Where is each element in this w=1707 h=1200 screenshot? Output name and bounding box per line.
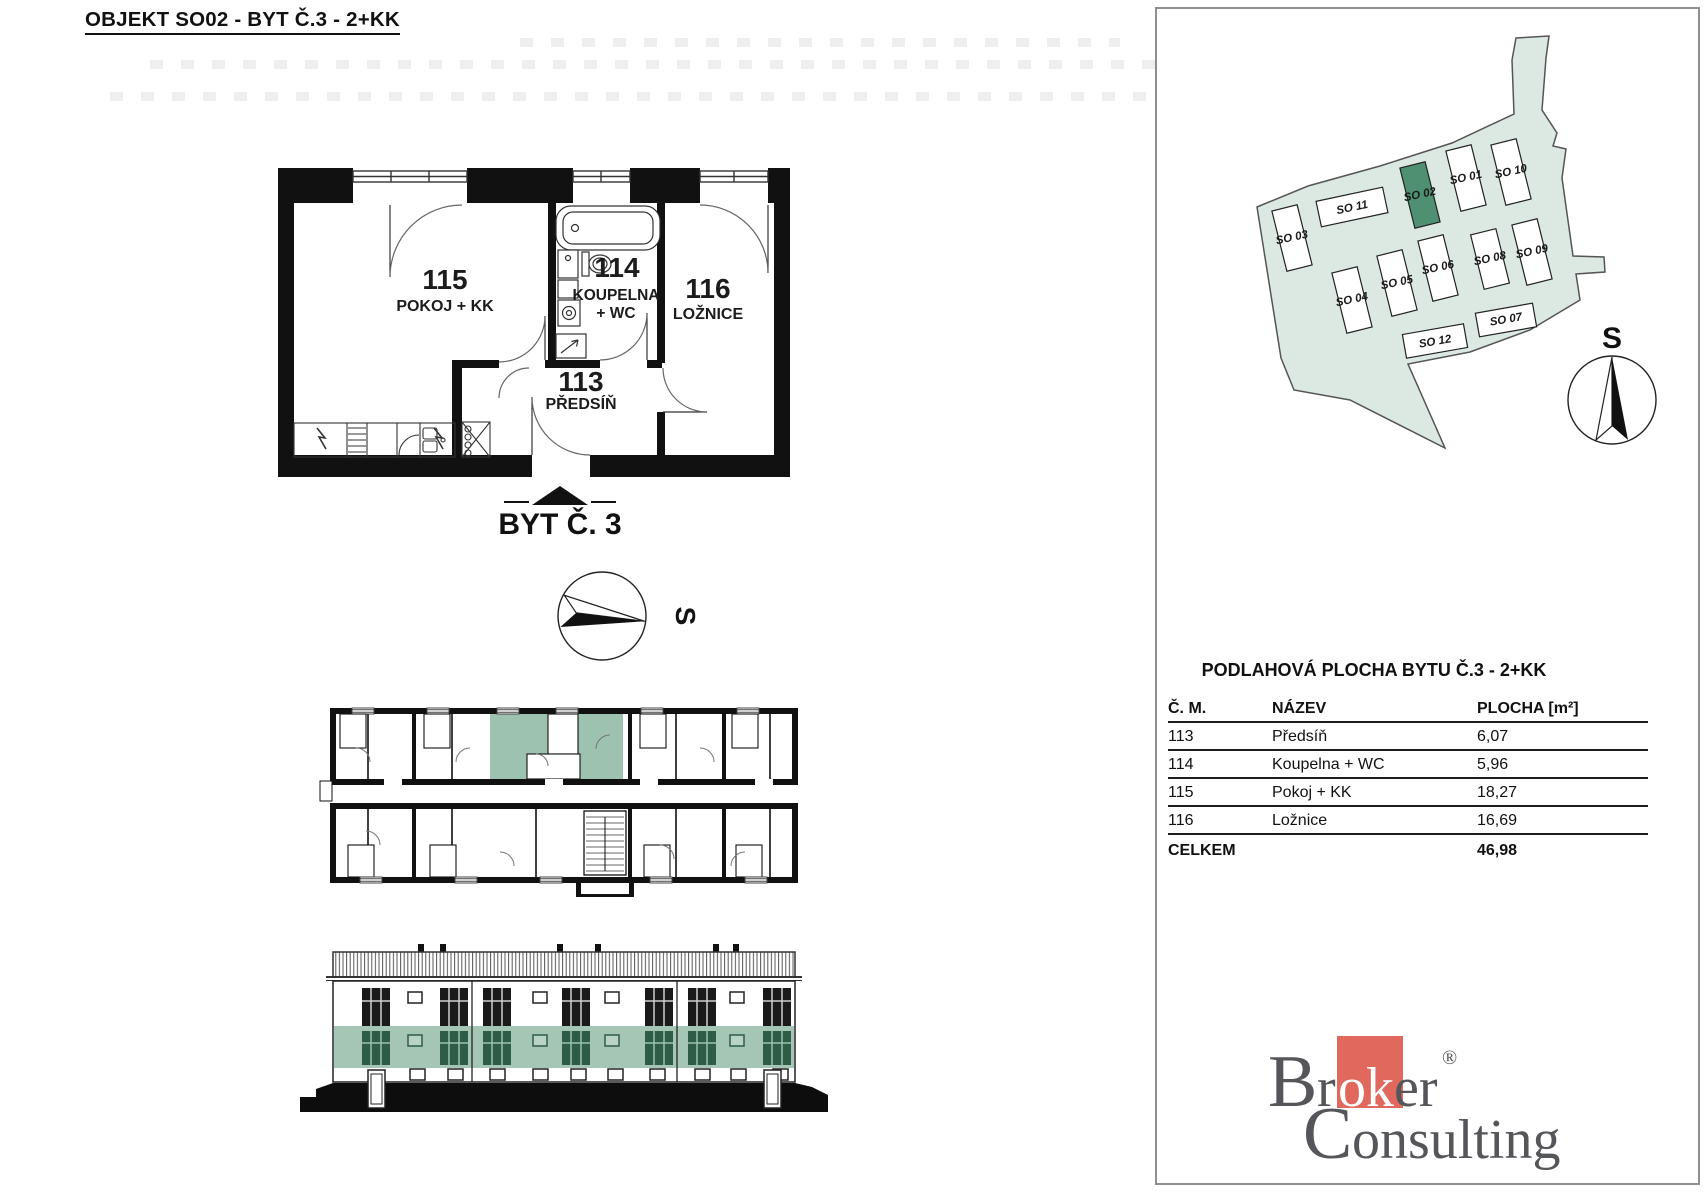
- room-name: Pokoj + KK: [1272, 783, 1477, 802]
- logo-letter: C: [1303, 1093, 1352, 1175]
- room-115-number: 115: [422, 264, 467, 295]
- room-115-name: POKOJ + KK: [396, 298, 494, 315]
- table-header-row: Č. M. NÁZEV PLOCHA [m²]: [1168, 695, 1648, 723]
- floor-plan-compass: S: [558, 572, 701, 660]
- table-row: 113 Předsíň 6,07: [1168, 723, 1648, 751]
- room-number: 114: [1168, 755, 1272, 774]
- architectural-drawings: 115 POKOJ + KK 114 KOUPELNA + WC 116 LOŽ…: [260, 140, 830, 1130]
- table-row: 116 Ložnice 16,69: [1168, 807, 1648, 835]
- room-113-name: PŘEDSÍŇ: [545, 394, 616, 413]
- site-compass: S: [1568, 322, 1656, 444]
- room-number: 115: [1168, 783, 1272, 802]
- total-label: CELKEM: [1168, 841, 1477, 860]
- staircase: [576, 811, 634, 897]
- room-114-number: 114: [594, 252, 640, 283]
- room-number: 116: [1168, 811, 1272, 830]
- chimneys: [418, 944, 739, 952]
- scan-artifact: [520, 38, 1120, 47]
- room-area: 18,27: [1477, 783, 1648, 802]
- room-name: Ložnice: [1272, 811, 1477, 830]
- room-116-name: LOŽNICE: [673, 304, 744, 323]
- table-row: 114 Koupelna + WC 5,96: [1168, 751, 1648, 779]
- room-name: Koupelna + WC: [1272, 755, 1477, 774]
- north-label: S: [1602, 322, 1622, 355]
- entrance-arrow-icon: [532, 486, 588, 505]
- floor-area-table: PODLAHOVÁ PLOCHA BYTU Č.3 - 2+KK Č. M. N…: [1168, 660, 1648, 863]
- site-plan: SO 11 SO 02 SO 01 SO 10 SO 03 SO 06 SO 0…: [1157, 9, 1698, 1183]
- north-label: S: [670, 607, 701, 626]
- building-elevation: [300, 944, 828, 1112]
- broker-consulting-logo: B r ok er ® C onsulting: [1255, 1015, 1705, 1175]
- room-116-number: 116: [685, 273, 730, 304]
- stove-icon: [317, 428, 326, 449]
- room-114-name: KOUPELNA: [573, 287, 660, 304]
- table-title: PODLAHOVÁ PLOCHA BYTU Č.3 - 2+KK: [1168, 660, 1580, 681]
- col-header-area: PLOCHA [m²]: [1477, 699, 1648, 718]
- room-area: 6,07: [1477, 727, 1648, 746]
- roof: [333, 952, 795, 977]
- total-value: 46,98: [1477, 841, 1648, 860]
- room-area: 5,96: [1477, 755, 1648, 774]
- building-floor-plan: [320, 708, 798, 897]
- room-name: Předsíň: [1272, 727, 1477, 746]
- room-114-name-2: + WC: [596, 305, 635, 322]
- document-title: OBJEKT SO02 - BYT Č.3 - 2+KK: [85, 8, 400, 35]
- room-area: 16,69: [1477, 811, 1648, 830]
- apartment-label: BYT Č. 3: [498, 507, 621, 541]
- col-header-name: NÁZEV: [1272, 699, 1477, 718]
- room-113-number: 113: [558, 366, 603, 397]
- info-panel: SO 11 SO 02 SO 01 SO 10 SO 03 SO 06 SO 0…: [1155, 7, 1700, 1185]
- room-number: 113: [1168, 727, 1272, 746]
- document-page: OBJEKT SO02 - BYT Č.3 - 2+KK: [0, 0, 1707, 1200]
- table-row: 115 Pokoj + KK 18,27: [1168, 779, 1648, 807]
- sink: [558, 250, 578, 278]
- registered-icon: ®: [1442, 1047, 1457, 1069]
- apartment-floor-plan: 115 POKOJ + KK 114 KOUPELNA + WC 116 LOŽ…: [278, 168, 790, 660]
- toilet: [582, 252, 589, 276]
- table-total-row: CELKEM 46,98: [1168, 835, 1648, 863]
- col-header-number: Č. M.: [1168, 699, 1272, 718]
